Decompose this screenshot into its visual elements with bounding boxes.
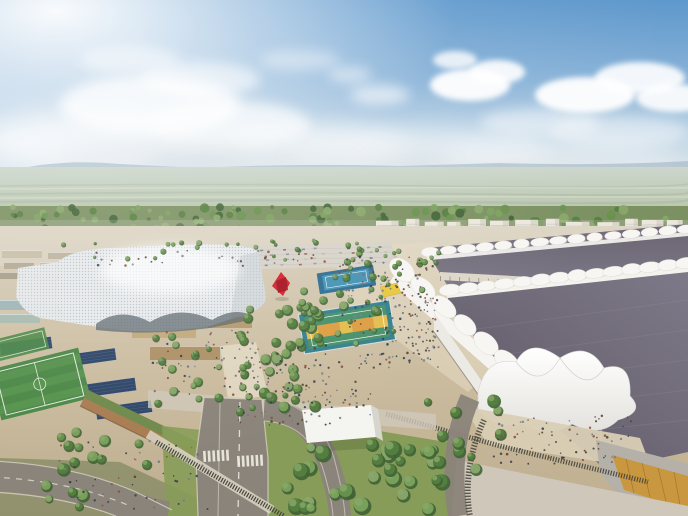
light-grading: [0, 0, 688, 516]
scene-canvas: [0, 0, 688, 516]
aerial-rendering: [0, 0, 688, 516]
